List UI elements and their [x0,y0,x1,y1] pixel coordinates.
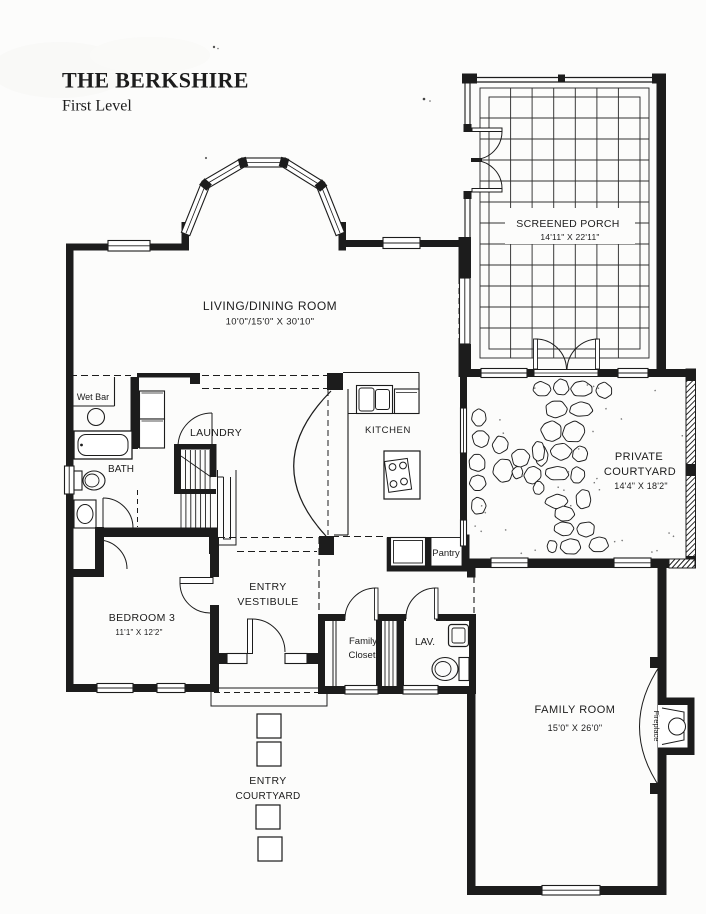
svg-text:Family: Family [349,636,377,647]
svg-text:Fireplace: Fireplace [652,711,661,742]
svg-text:COURTYARD: COURTYARD [604,466,676,478]
svg-text:LIVING/DINING ROOM: LIVING/DINING ROOM [203,299,337,313]
svg-text:COURTYARD: COURTYARD [235,791,300,802]
svg-text:ENTRY: ENTRY [249,581,286,593]
svg-text:Pantry: Pantry [432,548,460,559]
svg-text:BEDROOM 3: BEDROOM 3 [109,612,176,624]
svg-text:KITCHEN: KITCHEN [365,425,411,436]
svg-text:11'1" X 12'2": 11'1" X 12'2" [115,628,162,637]
svg-text:BATH: BATH [108,464,134,475]
svg-text:LAV.: LAV. [415,637,435,648]
svg-text:SCREENED PORCH: SCREENED PORCH [516,218,619,230]
svg-text:VESTIBULE: VESTIBULE [237,596,298,608]
svg-text:15'0" X 26'0": 15'0" X 26'0" [548,723,603,733]
svg-text:LAUNDRY: LAUNDRY [190,427,242,439]
svg-text:ENTRY: ENTRY [249,775,286,787]
svg-text:FAMILY ROOM: FAMILY ROOM [535,704,616,716]
svg-text:Wet Bar: Wet Bar [77,392,109,402]
svg-text:10'0"/15'0" X 30'10": 10'0"/15'0" X 30'10" [226,317,315,328]
svg-text:PRIVATE: PRIVATE [615,451,663,463]
svg-text:THE BERKSHIRE: THE BERKSHIRE [62,68,249,93]
svg-text:Closet: Closet [349,650,376,661]
svg-text:First Level: First Level [62,98,132,115]
svg-text:14'11" X 22'11": 14'11" X 22'11" [540,232,599,242]
svg-text:14'4" X 18'2": 14'4" X 18'2" [614,481,667,491]
